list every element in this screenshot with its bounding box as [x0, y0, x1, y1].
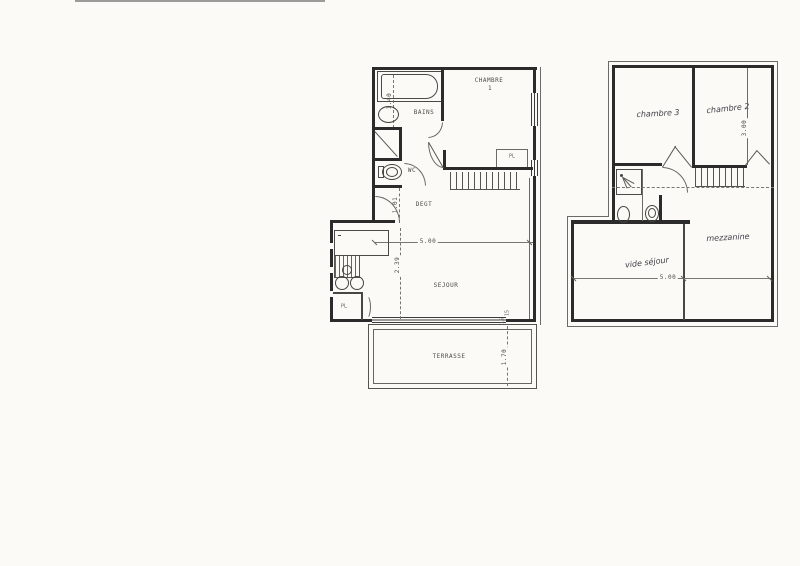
wall-segment — [441, 67, 444, 121]
door-leaf-line — [674, 146, 692, 168]
wall-segment — [659, 195, 662, 224]
wall-outer-line — [567, 216, 568, 326]
dimension-chambre2-depth: 3.00 — [742, 118, 748, 138]
wall-outer-line — [567, 326, 778, 327]
toilet-bowl — [386, 167, 398, 177]
door-arc — [404, 163, 426, 186]
room-label-mezzanine: mezzanine — [706, 233, 750, 243]
closet-wall — [333, 292, 363, 294]
wall-inner-line — [529, 178, 530, 320]
room-label-chambre2: chambre 2 — [706, 103, 750, 115]
closet-label-pl-cuisine: PL — [341, 305, 347, 310]
room-label-chambre3: chambre 3 — [636, 109, 679, 119]
wall-segment — [683, 224, 685, 320]
wall-segment — [571, 220, 574, 322]
wall-segment — [372, 185, 402, 188]
wall-segment — [372, 127, 400, 130]
wall-segment — [771, 65, 774, 322]
wall-outer-line — [777, 61, 778, 327]
wall-segment — [399, 127, 402, 160]
wall-segment — [372, 67, 537, 70]
staircase — [695, 168, 745, 187]
washbasin — [378, 106, 399, 123]
closet-line — [496, 149, 528, 150]
room-label-sejour: SEJOUR — [434, 283, 459, 289]
wall-segment — [443, 167, 533, 170]
room-label-degt: DEGT — [416, 202, 432, 208]
dimension-line — [747, 68, 748, 165]
washbasin — [617, 206, 630, 223]
scan-artifact-line — [75, 0, 325, 2]
dimension-line — [375, 242, 533, 243]
wall-segment — [533, 67, 536, 95]
bathroom-divider — [642, 169, 643, 221]
wall-pier — [330, 273, 333, 291]
wall-pier — [330, 297, 333, 319]
room-label-chambre1: CHAMBRE — [475, 78, 504, 84]
hotplate — [342, 265, 352, 275]
wall-segment — [571, 220, 690, 224]
dimension-floor-width: 5.00 — [658, 275, 678, 281]
window — [531, 93, 538, 126]
wall-segment — [372, 158, 402, 161]
scanned-floor-plan-sheet: 1.40 BAINS WC CHAMBRE 1 PL DEGT 1.01 — [0, 0, 800, 566]
wall-pier — [330, 223, 333, 243]
door-arc — [662, 167, 688, 193]
dimension-terrasse-depth: 1.70 — [502, 347, 508, 367]
window-mark: 15 — [506, 310, 511, 316]
wall-outer-line — [567, 216, 609, 217]
toilet-bowl — [648, 208, 656, 218]
wall-outer-line — [540, 67, 541, 325]
kitchen-mark — [338, 235, 341, 236]
wall-outer-line — [608, 61, 778, 62]
slope-line — [756, 150, 770, 165]
wall-segment — [506, 319, 536, 322]
room-label-terrasse: TERRASSE — [433, 354, 466, 360]
staircase — [450, 172, 520, 190]
wall-segment — [571, 319, 774, 322]
room-label-chambre1-num: 1 — [488, 86, 492, 92]
closet-label-pl: PL — [509, 155, 515, 160]
room-label-vide-sejour: vide séjour — [625, 256, 670, 269]
wall-segment — [533, 126, 536, 160]
wall-pier — [330, 249, 333, 267]
closet-line — [527, 149, 528, 167]
wall-outer-line — [608, 61, 609, 217]
bay-window — [372, 317, 506, 323]
attic-dashed-line — [612, 187, 774, 188]
hotplate — [350, 276, 364, 290]
kitchen-sink-unit — [334, 230, 389, 256]
wall-segment — [612, 163, 662, 166]
door-arc — [362, 295, 371, 319]
wall-segment — [612, 65, 615, 223]
wall-segment — [533, 176, 536, 322]
dimension-sejour-width: 5.00 — [418, 239, 438, 245]
dimension-sejour-depth: 2.39 — [395, 255, 401, 275]
room-label-bains: BAINS — [414, 110, 435, 116]
door-arc — [428, 122, 443, 138]
hotplate — [335, 276, 349, 290]
wall-segment — [692, 65, 695, 168]
ground-floor-plan: 1.40 BAINS WC CHAMBRE 1 PL DEGT 1.01 — [328, 65, 542, 393]
wall-segment — [330, 319, 372, 322]
door-leaf-line — [662, 146, 676, 168]
closet-line — [496, 149, 497, 167]
shower — [616, 169, 642, 195]
upper-floor-plan: chambre 3 chambre 2 mezzanine vide séjou… — [565, 58, 781, 330]
closet-door-line — [374, 131, 397, 157]
